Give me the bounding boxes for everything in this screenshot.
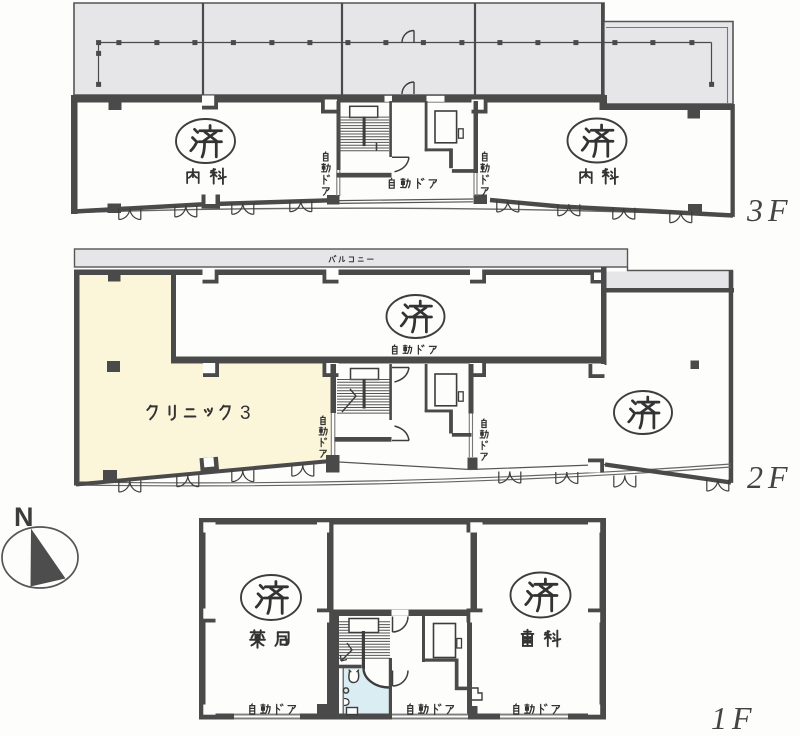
svg-text:1F: 1F [711, 700, 757, 736]
svg-text:3: 3 [240, 403, 251, 424]
svg-text:3F: 3F [746, 192, 793, 228]
svg-text:2F: 2F [747, 459, 793, 495]
